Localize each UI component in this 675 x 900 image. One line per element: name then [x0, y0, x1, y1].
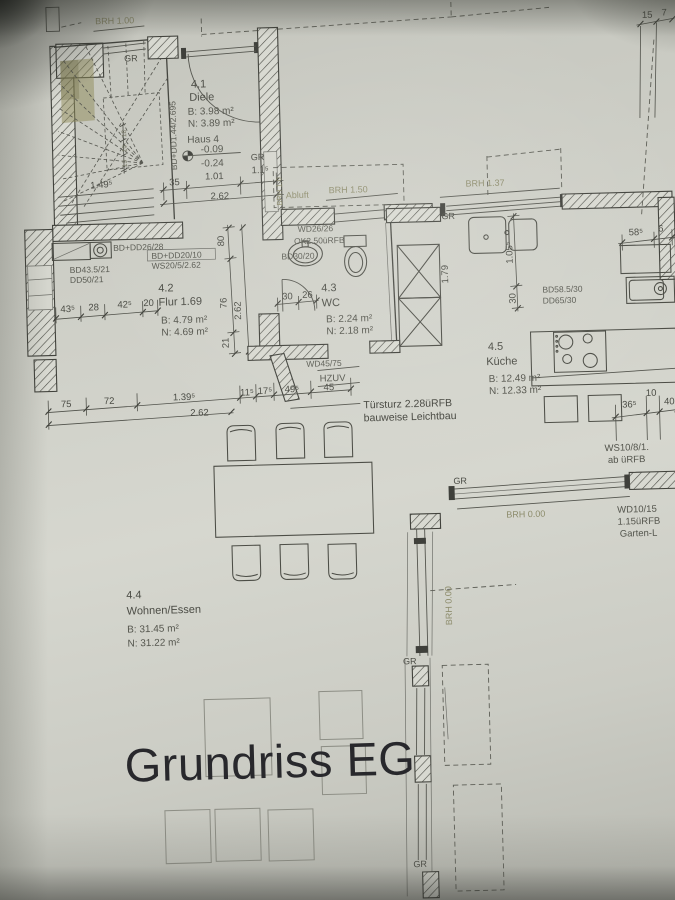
floorplan-drawing: 18 10 19 1.49⁵ BRH 1.00 GR 4.1	[0, 0, 675, 900]
exterior-element	[453, 784, 504, 891]
component-label: 1.15üRFB	[617, 516, 660, 528]
room-number: 4.1	[191, 78, 207, 90]
component-label: WS20/5/2.62	[152, 260, 202, 271]
roller-shutter-label: GR	[413, 859, 427, 869]
dim: 30	[507, 293, 518, 304]
dim: 80	[216, 236, 227, 247]
dim: 45	[323, 382, 334, 393]
room-name: WC	[322, 297, 341, 309]
stair-width-dim: 1.49⁵	[90, 179, 113, 192]
note-line1: Türsturz 2.28üRFB	[363, 397, 452, 411]
dim-chain-flur: 43⁵ 28 42⁵ 20	[53, 298, 162, 324]
stair-step-dim: 10	[121, 144, 128, 152]
cooktop	[554, 331, 607, 372]
parapet-height-label: BRH 1.00	[95, 15, 134, 26]
parapet-height-label: BRH 1.37	[465, 178, 504, 189]
dim: 30	[282, 291, 293, 302]
room-area-n: N: 2.18 m²	[326, 325, 374, 337]
room-area-n: N: 31.22 m²	[127, 637, 180, 649]
top-edge-elements: BRH 1.00	[46, 5, 145, 33]
dim: 1.1⁵	[251, 165, 268, 176]
exhaust-label: Abluft	[286, 190, 310, 201]
elevation-lower: -0.24	[201, 158, 225, 170]
room-name: Flur 1.69	[158, 296, 202, 309]
component-label: ab üRFB	[608, 454, 646, 466]
note-line2: bauweise Leichtbau	[364, 410, 457, 424]
chair	[227, 425, 256, 461]
component-label: WD26/26	[298, 223, 334, 234]
dim: 75	[61, 399, 72, 410]
kitchen-north: GR BRH 1.37 1.05⁵ 30 BD58.5/30 DD65/30	[385, 145, 675, 346]
dim: 26	[302, 290, 313, 301]
wall	[415, 756, 432, 782]
room-number: 4.2	[158, 282, 174, 294]
dim: 28	[88, 302, 99, 313]
dim: 10	[646, 388, 657, 399]
wall	[34, 359, 57, 392]
wall	[370, 340, 400, 353]
room-area-n: N: 12.33 m²	[489, 385, 542, 397]
stool	[544, 396, 578, 423]
toilet	[344, 235, 367, 277]
room-area-n: N: 3.89 m²	[188, 118, 236, 130]
lintel-note: WD45/75 HZUV Türsturz 2.28üRFB bauweise …	[289, 355, 457, 426]
dim: 76	[218, 298, 229, 309]
wall	[259, 314, 280, 349]
floorplan-photo: 18 10 19 1.49⁵ BRH 1.00 GR 4.1	[0, 0, 675, 900]
wall	[629, 471, 675, 489]
dim: 1.79	[440, 265, 451, 284]
wall	[386, 207, 440, 222]
window	[28, 265, 53, 310]
room-number: 4.4	[126, 589, 142, 601]
chair	[324, 422, 353, 458]
component-label: WD45/75	[306, 358, 342, 369]
roller-shutter-label: GR	[453, 476, 467, 486]
elevation-upper: -0.09	[200, 144, 224, 156]
room-flur: BD+DD26/28 BD+DD20/10 WS20/5/2.62 BD43.5…	[25, 220, 252, 362]
wall-corner	[410, 513, 440, 529]
component-label: BD30/20	[281, 251, 315, 262]
dim: 6	[658, 223, 664, 234]
wall	[562, 191, 672, 209]
roller-shutter-label: GR	[251, 152, 265, 162]
component-label: Garten-L	[620, 528, 658, 540]
dim: 20	[143, 298, 154, 309]
parapet-height-label: BRH 1.0	[274, 177, 284, 206]
exterior-element	[442, 664, 491, 765]
dim-total: 2.62	[210, 191, 229, 202]
wall	[412, 666, 429, 686]
dim-total: 2.62	[233, 301, 244, 320]
roller-shutter-label: GR	[124, 53, 138, 63]
dining-table	[214, 462, 374, 537]
room-area-b: B: 2.24 m²	[326, 313, 373, 325]
wall	[53, 222, 183, 241]
parapet-height-label: BRH 1.50	[329, 184, 368, 195]
dim: 15	[642, 10, 653, 21]
tall-cabinets	[397, 244, 442, 346]
chair	[232, 545, 261, 581]
dim: 49⁵	[285, 384, 300, 395]
room-area-n: N: 4.69 m²	[161, 326, 209, 338]
component-label: DD65/30	[543, 295, 577, 306]
stair-step-dim: 18	[121, 129, 128, 137]
room-name: Küche	[486, 355, 518, 368]
room-name: Diele	[189, 91, 214, 104]
chair	[280, 544, 309, 580]
kitchen-island: 4.5 Küche B: 12.49 m² N: 12.33 m² 36⁵ 10…	[486, 328, 675, 469]
component-label: WS10/8/1.	[604, 442, 649, 454]
dim: 1.05⁵	[504, 241, 516, 264]
staircase: 18 10 19 1.49⁵	[50, 38, 175, 226]
kitchen-sink	[468, 216, 537, 254]
dim: 1.39⁵	[173, 392, 196, 404]
dim: 7	[661, 7, 667, 18]
component-label: BD+DD1.44/2.695	[167, 101, 179, 171]
dim: 58⁵	[629, 227, 644, 238]
counter	[530, 328, 675, 386]
dim: 43⁵	[60, 304, 75, 315]
dim: 72	[104, 396, 115, 407]
dim-chain-flur-vertical: 80 76 21 2.62	[216, 224, 252, 357]
component-label: OK2.50üRFB	[294, 235, 345, 246]
room-wohnen: 4.4 Wohnen/Essen B: 31.45 m² N: 31.22 m²	[122, 421, 382, 864]
parapet-height-label: BRH 0.00	[443, 586, 454, 625]
room-name: Wohnen/Essen	[127, 604, 202, 618]
room-diele: 4.1 Diele B: 3.98 m² N: 3.89 m² BD+DD1.4…	[155, 27, 285, 242]
component-label: BD58.5/30	[542, 284, 583, 295]
roller-shutter-label: GR	[441, 211, 455, 221]
dim: 42⁵	[117, 299, 132, 310]
dim-total: 2.62	[190, 407, 209, 418]
room-area-b: B: 3.98 m²	[187, 106, 234, 118]
drawing-title: Grundriss EG	[124, 731, 416, 792]
component-label: BD43.5/21	[70, 264, 111, 275]
room-area-b: B: 31.45 m²	[127, 623, 180, 635]
stair-step-dim: 19	[122, 159, 129, 167]
dim: 21	[221, 338, 232, 349]
room-area-b: B: 4.79 m²	[161, 314, 208, 326]
dim: 40	[664, 396, 675, 407]
dim: 17⁵	[258, 386, 273, 397]
wall	[423, 872, 440, 898]
room-number: 4.3	[321, 282, 337, 294]
dim: 11⁵	[240, 387, 254, 398]
room-area-b: B: 12.49 m²	[489, 373, 542, 385]
dim: 1.01	[205, 171, 224, 182]
parapet-height-label: BRH 0.00	[506, 509, 545, 520]
dim: 35	[169, 177, 180, 188]
component-label: WD10/15	[617, 504, 657, 516]
room-number: 4.5	[488, 341, 504, 353]
elevation-datum: Haus 4 -0.09 -0.24	[182, 134, 241, 171]
garden-wall: GR BRH 0.00 WD10/15 1.15üRFB Garten-L BR…	[396, 470, 675, 898]
dim-chain-kitchen-vertical: 1.05⁵ 30	[503, 213, 524, 311]
dim-corner-topright: 15 7	[636, 7, 675, 216]
chair	[276, 423, 305, 459]
component-label: DD50/21	[70, 274, 104, 285]
chair	[328, 544, 357, 580]
dim: 36⁵	[622, 399, 637, 410]
